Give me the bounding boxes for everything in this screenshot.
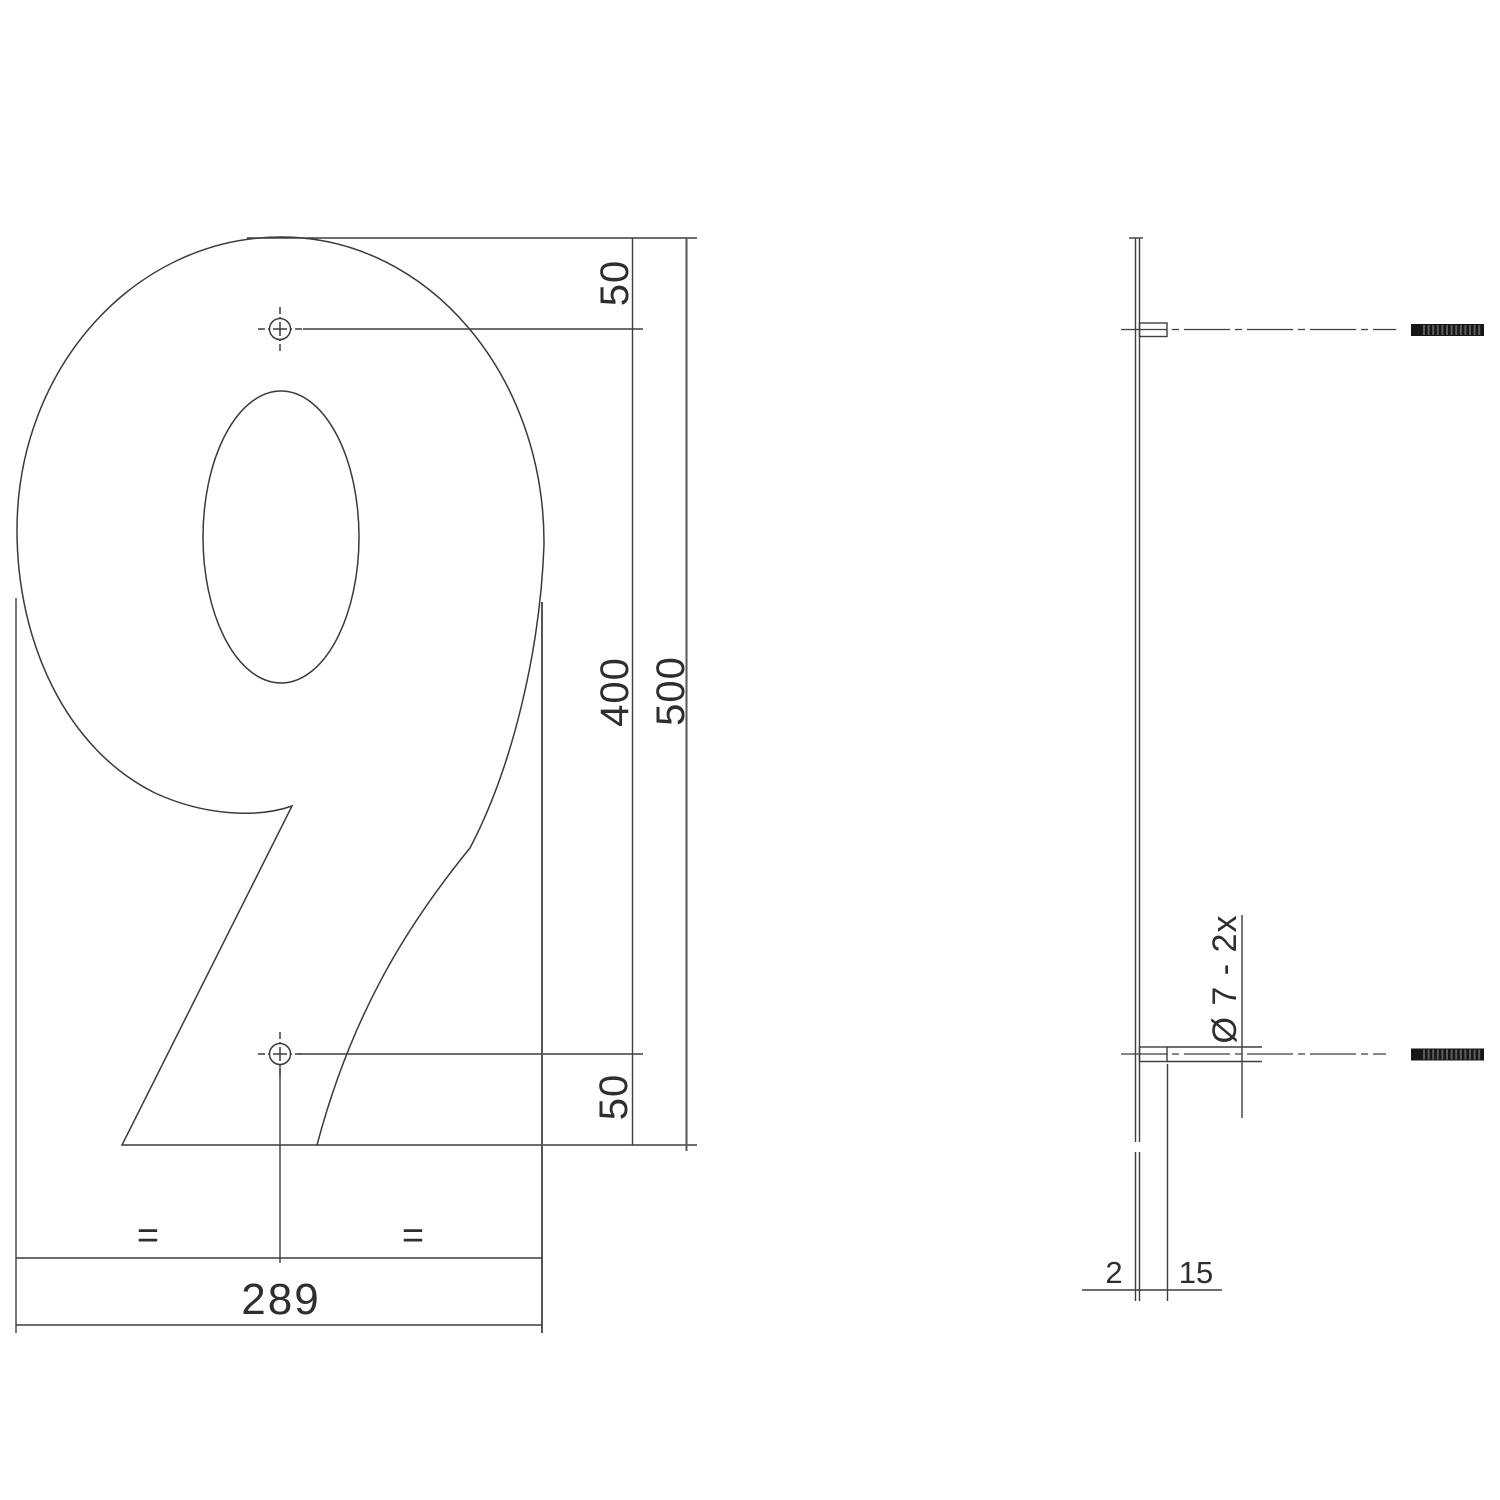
hole-diameter-label: Ø 7 - 2x <box>1206 915 1244 1044</box>
dim-top-offset-label: 50 <box>593 260 637 307</box>
digit-9-counter <box>203 391 359 683</box>
equal-mark-right: = <box>402 1215 424 1257</box>
digit-9-outline <box>17 237 544 1145</box>
dim-bottom-offset-label: 50 <box>592 1074 636 1121</box>
dim-total-height-label: 500 <box>649 656 693 726</box>
mounting-hole-top-icon <box>258 307 302 351</box>
screw-top-icon <box>1411 324 1484 336</box>
dim-hole-spacing-label: 400 <box>593 657 637 727</box>
dim-thickness-label: 2 <box>1105 1255 1122 1290</box>
front-view: 50 400 500 50 = = 289 <box>16 237 697 1333</box>
technical-drawing-house-number-9: 50 400 500 50 = = 289 <box>0 0 1500 1500</box>
dim-standoff-label: 15 <box>1179 1255 1213 1290</box>
side-view: Ø 7 - 2x 2 15 <box>1082 238 1484 1301</box>
dim-width-label: 289 <box>241 1275 320 1324</box>
equal-mark-left: = <box>137 1215 159 1257</box>
plate-profile <box>1129 238 1143 1301</box>
front-dimension-lines <box>16 238 697 1333</box>
screw-bottom-icon <box>1411 1049 1484 1061</box>
drawing-canvas: 50 400 500 50 = = 289 <box>0 0 1500 1500</box>
